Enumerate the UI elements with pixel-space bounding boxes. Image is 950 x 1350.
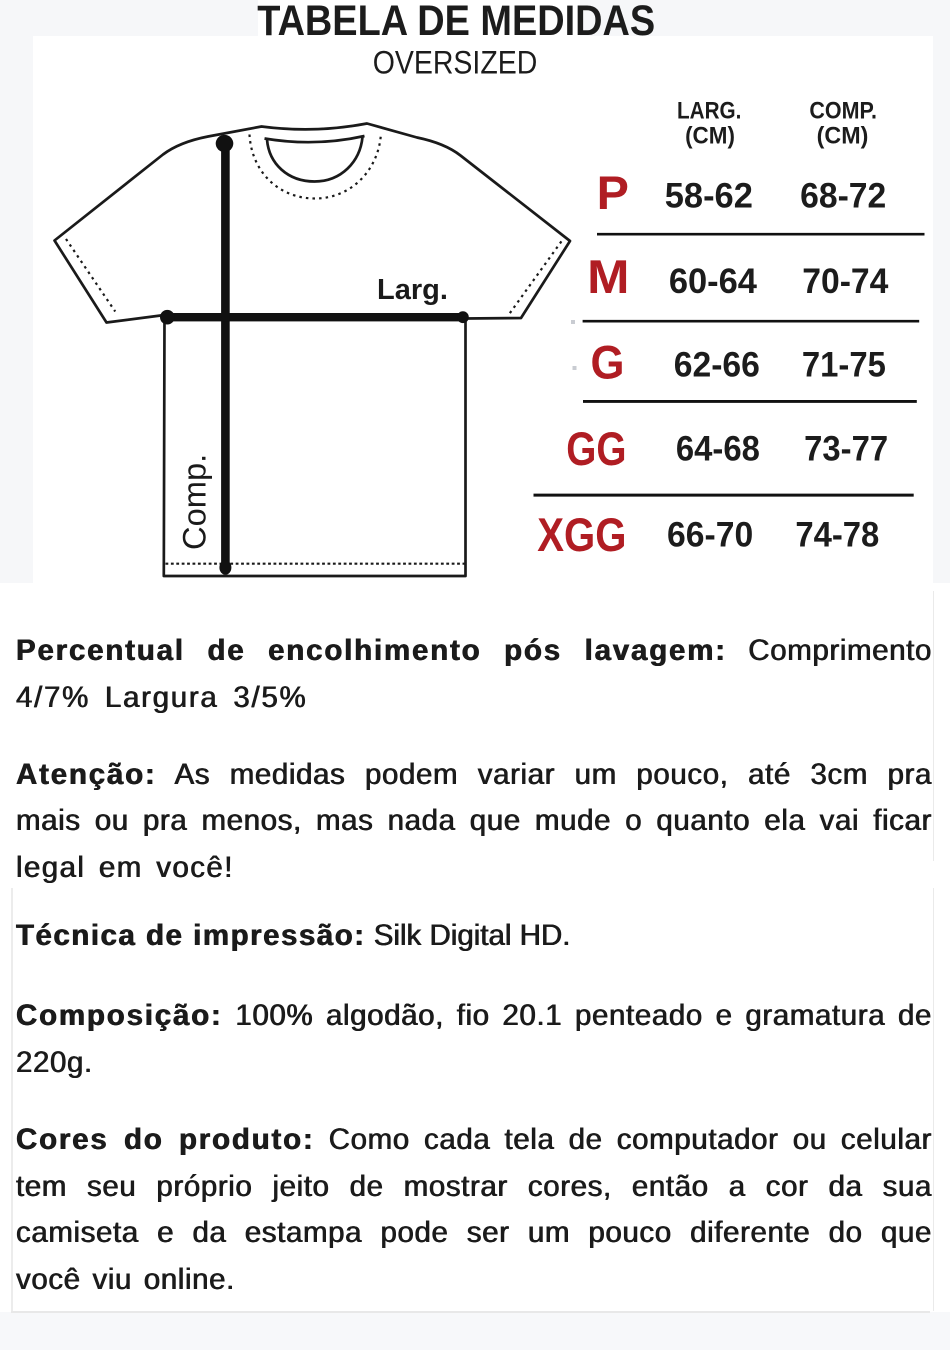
svg-text:COMP.: COMP. — [809, 96, 877, 124]
svg-text:60-64: 60-64 — [669, 262, 758, 302]
svg-text:P: P — [597, 167, 629, 219]
svg-text:68-72: 68-72 — [800, 177, 886, 216]
svg-text:(CM): (CM) — [817, 122, 869, 150]
svg-text:OVERSIZED: OVERSIZED — [373, 46, 538, 81]
svg-text:LARG.: LARG. — [677, 96, 741, 124]
svg-text:62-66: 62-66 — [674, 346, 760, 385]
svg-text:71-75: 71-75 — [802, 345, 886, 384]
svg-text:M: M — [587, 251, 629, 304]
svg-text:74-78: 74-78 — [795, 515, 879, 554]
svg-text:G: G — [591, 336, 625, 389]
svg-text:58-62: 58-62 — [665, 176, 753, 216]
svg-text:GG: GG — [566, 423, 626, 476]
svg-text:73-77: 73-77 — [804, 429, 888, 468]
svg-text:(CM): (CM) — [685, 122, 735, 149]
svg-text:Comp.: Comp. — [177, 454, 213, 550]
svg-text:64-68: 64-68 — [676, 429, 760, 468]
svg-text:XGG: XGG — [537, 509, 626, 562]
svg-text:66-70: 66-70 — [667, 516, 753, 555]
svg-text:TABELA DE MEDIDAS: TABELA DE MEDIDAS — [257, 0, 655, 45]
svg-text:Larg.: Larg. — [377, 274, 448, 306]
svg-text:70-74: 70-74 — [802, 262, 889, 301]
